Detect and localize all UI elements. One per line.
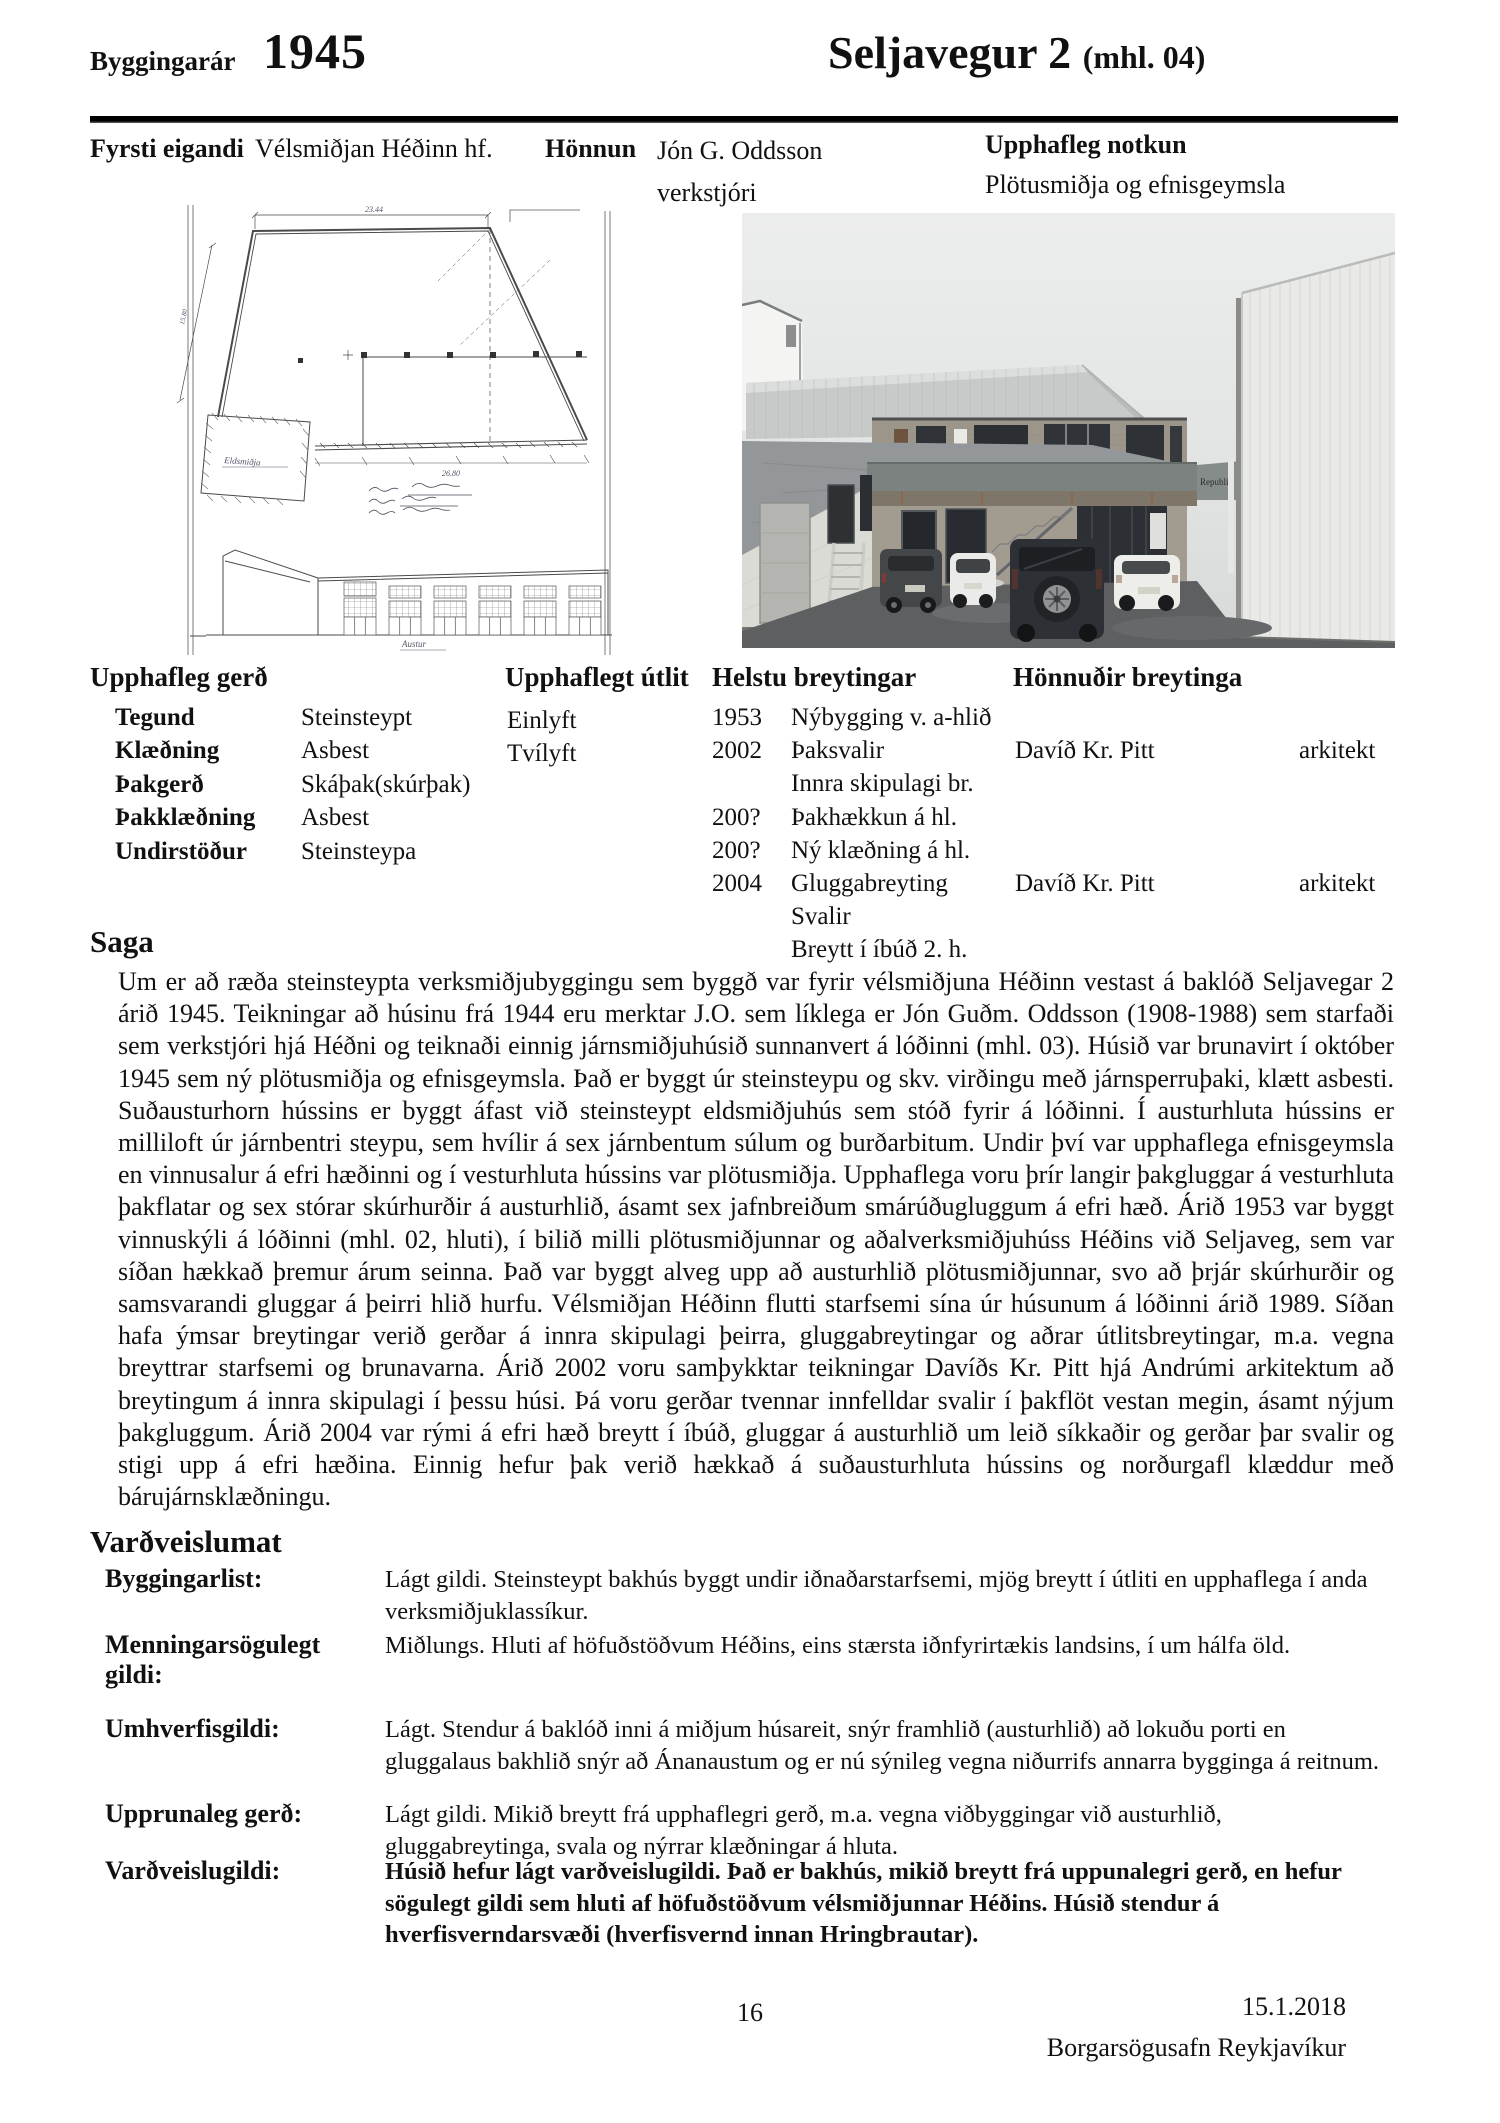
building-photograph: Republik [742, 213, 1395, 648]
change-designer: Davíð Kr. Pitt [1015, 737, 1299, 770]
report-date: 15.1.2018 [1047, 1986, 1346, 2027]
field-value: Asbest [301, 804, 369, 832]
plan-bottom-dimension: 26.80 [442, 469, 460, 478]
institution-name: Borgarsögusafn Reykjavíkur [1047, 2027, 1346, 2068]
field-value: Skáþak(skúrþak) [301, 771, 470, 799]
change-description: Breytt í íbúð 2. h. [791, 936, 1015, 969]
building-part-number: (mhl. 04) [1083, 39, 1206, 75]
assessment-label-preservation-value: Varðveislugildi: [105, 1856, 383, 1886]
change-description: Svalir [791, 903, 1015, 936]
change-designer [1015, 804, 1299, 837]
original-use-value: Plötusmiðja og efnisgeymsla [985, 170, 1285, 200]
field-label: Tegund [115, 704, 301, 732]
assessment-text-preservation-value: Húsið hefur lágt varðveislugildi. Það er… [385, 1856, 1415, 1951]
change-designer [1015, 770, 1299, 803]
main-changes-heading: Helstu breytingar [712, 662, 916, 693]
field-value: Asbest [301, 737, 369, 765]
change-row: Svalir [712, 903, 1414, 936]
change-year [712, 936, 791, 969]
original-appearance-list: Einlyft Tvílyft [507, 704, 576, 771]
change-designer [1015, 936, 1299, 969]
dark-suv [1010, 539, 1104, 642]
appearance-item: Einlyft [507, 704, 576, 737]
street-address: Seljavegur 2 [828, 27, 1071, 78]
design-label: Hönnun [545, 134, 636, 164]
handwritten-signatures [369, 483, 472, 514]
right-corrugated-wall [1228, 253, 1395, 643]
form-field-row: ÞakklæðningAsbest [115, 804, 470, 837]
change-description: Ný klæðning á hl. [791, 837, 1015, 870]
assessment-text-cultural: Miðlungs. Hluti af höfuðstöðvum Héðins, … [385, 1630, 1385, 1662]
first-owner-value: Vélsmiðjan Héðinn hf. [255, 134, 493, 164]
change-description: Nýbygging v. a-hlið [791, 704, 1015, 737]
field-label: Þakklæðning [115, 804, 301, 832]
change-description: Innra skipulagi br. [791, 770, 1015, 803]
change-designer [1015, 903, 1299, 936]
original-form-list: TegundSteinsteypt KlæðningAsbest Þakgerð… [115, 704, 470, 871]
building-year-label: Byggingarár [90, 46, 236, 77]
original-use-label: Upphafleg notkun [985, 130, 1187, 160]
change-designer [1015, 837, 1299, 870]
field-label: Undirstöður [115, 838, 301, 866]
change-row: Innra skipulagi br. [712, 770, 1414, 803]
designer-role: arkitekt [1299, 870, 1375, 903]
smithy-label: Eldsmiðja [223, 455, 262, 468]
field-value: Steinsteypt [301, 704, 412, 732]
elevation-label: Austur [401, 639, 427, 649]
assessment-label-original-form: Upprunaleg gerð: [105, 1799, 383, 1829]
designer-name: Jón G. Oddsson [657, 136, 822, 166]
plan-top-dimension: 23.44 [365, 205, 383, 214]
change-year: 1953 [712, 704, 791, 737]
balcony-walkway: Republik [867, 461, 1242, 506]
original-appearance-heading: Upphaflegt útlit [505, 662, 689, 693]
building-year: 1945 [263, 22, 367, 80]
change-row: 200?Þakhækkun á hl. [712, 804, 1414, 837]
dark-station-wagon [880, 549, 942, 613]
change-description: Þaksvalir [791, 737, 1015, 770]
form-field-row: KlæðningAsbest [115, 737, 470, 770]
change-year: 2004 [712, 870, 791, 903]
appearance-item: Tvílyft [507, 737, 576, 770]
history-text: Um er að ræða steinsteypta verksmiðjubyg… [118, 966, 1394, 1513]
footer-right-block: 15.1.2018 Borgarsögusafn Reykjavíkur [1047, 1986, 1346, 2068]
history-heading: Saga [90, 924, 154, 960]
preservation-assessment-heading: Varðveislumat [90, 1524, 282, 1560]
change-row: Breytt í íbúð 2. h. [712, 936, 1414, 969]
assessment-label-cultural: Menningarsögulegt gildi: [105, 1630, 383, 1690]
change-row: 200?Ný klæðning á hl. [712, 837, 1414, 870]
change-designer: Davíð Kr. Pitt [1015, 870, 1299, 903]
change-year: 2002 [712, 737, 791, 770]
field-value: Steinsteypa [301, 838, 416, 866]
change-year: 200? [712, 837, 791, 870]
change-row: 1953Nýbygging v. a-hlið [712, 704, 1414, 737]
white-sedan [1114, 555, 1180, 611]
assessment-text-environment: Lágt. Stendur á baklóð inni á miðjum hús… [385, 1714, 1385, 1777]
assessment-text-original-form: Lágt gildi. Mikið breytt frá upphaflegri… [385, 1799, 1385, 1862]
change-year [712, 770, 791, 803]
form-field-row: ÞakgerðSkáþak(skúrþak) [115, 771, 470, 804]
field-label: Klæðning [115, 737, 301, 765]
change-row: 2002ÞaksvalirDavíð Kr. Pittarkitekt [712, 737, 1414, 770]
assessment-text-architecture: Lágt gildi. Steinsteypt bakhús byggt und… [385, 1564, 1385, 1627]
first-owner-label: Fyrsti eigandi [90, 134, 244, 164]
change-designer [1015, 704, 1299, 737]
change-year: 200? [712, 804, 791, 837]
change-description: Gluggabreyting [791, 870, 1015, 903]
change-year [712, 903, 791, 936]
field-label: Þakgerð [115, 771, 301, 799]
designer-role: arkitekt [1299, 737, 1375, 770]
original-form-heading: Upphafleg gerð [90, 662, 268, 693]
page-title: Seljavegur 2 (mhl. 04) [828, 26, 1205, 79]
assessment-label-architecture: Byggingarlist: [105, 1564, 383, 1594]
floor-plan: 23.44 26.80 15.80 [177, 205, 589, 478]
heritage-report-page: Byggingarár 1945 Seljavegur 2 (mhl. 04) … [0, 0, 1500, 2123]
site-plan-and-elevation-drawing: 23.44 26.80 15.80 Eldsmiðja [150, 205, 620, 655]
main-changes-table: 1953Nýbygging v. a-hlið 2002ÞaksvalirDav… [712, 704, 1414, 970]
designer-title: verkstjóri [657, 178, 757, 208]
east-elevation: Austur [190, 550, 612, 650]
form-field-row: TegundSteinsteypt [115, 704, 470, 737]
assessment-label-environment: Umhverfisgildi: [105, 1714, 383, 1744]
form-field-row: UndirstöðurSteinsteypa [115, 838, 470, 871]
change-description: Þakhækkun á hl. [791, 804, 1015, 837]
change-designers-heading: Hönnuðir breytinga [1013, 662, 1242, 693]
white-hatchback [950, 553, 996, 608]
header-divider [90, 116, 1398, 123]
smithy-outbuilding-plan: Eldsmiðja [201, 413, 310, 505]
change-row: 2004GluggabreytingDavíð Kr. Pittarkitekt [712, 870, 1414, 903]
